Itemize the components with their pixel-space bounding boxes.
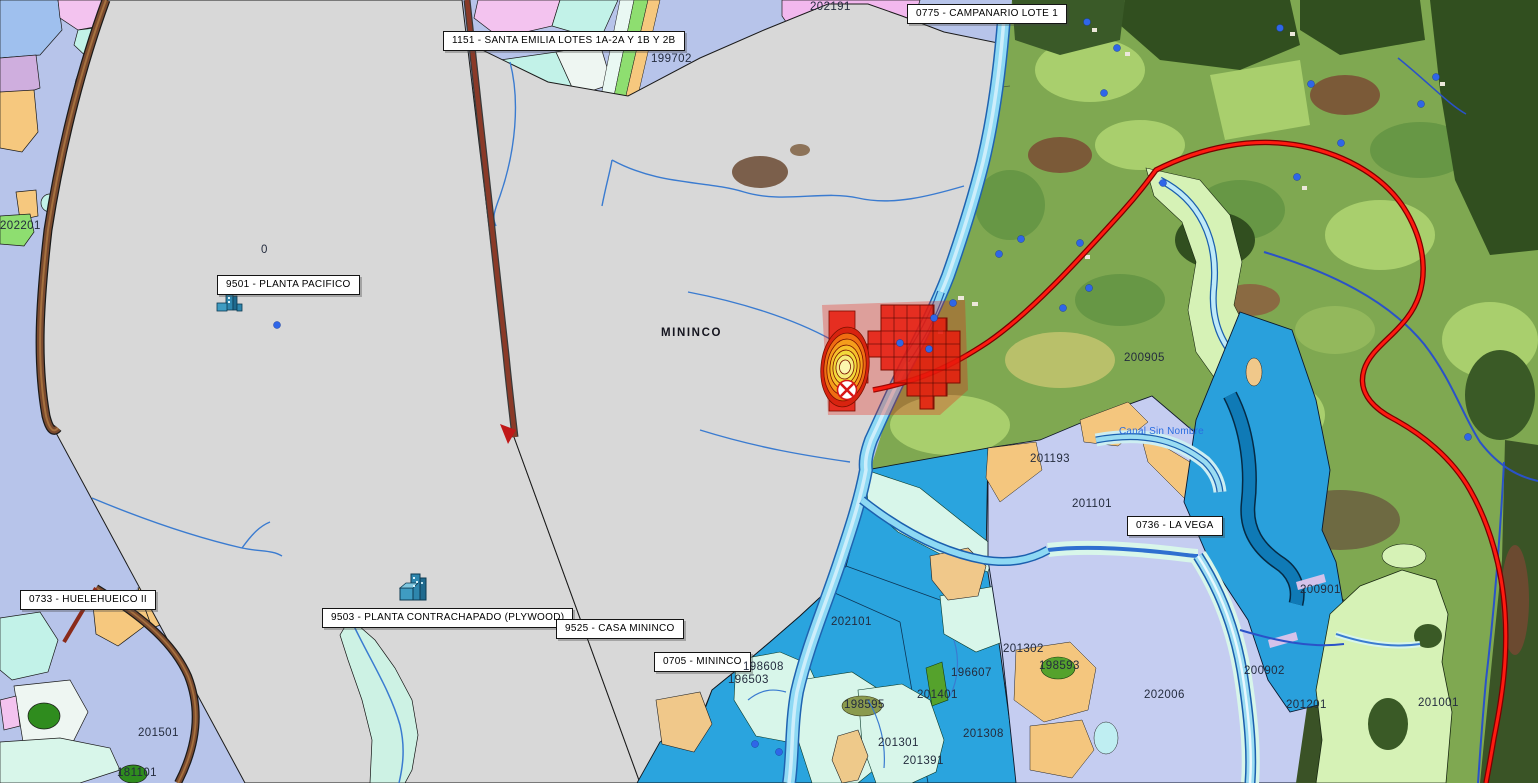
estate-label-9501[interactable]: 9501 - PLANTA PACIFICO xyxy=(217,275,360,295)
stand-label-201401: 201401 xyxy=(917,690,958,702)
estate-label-9525[interactable]: 9525 - CASA MININCO xyxy=(556,619,684,639)
stand-label-201301: 201301 xyxy=(878,738,919,750)
stand-label-201201: 201201 xyxy=(1286,700,1327,712)
estate-label-0775[interactable]: 0775 - CAMPANARIO LOTE 1 xyxy=(907,4,1067,24)
stand-label-202191: 202191 xyxy=(810,2,851,14)
stand-label-201001: 201001 xyxy=(1418,698,1459,710)
incident-marker[interactable] xyxy=(835,378,859,407)
estate-label-0736[interactable]: 0736 - LA VEGA xyxy=(1127,516,1223,536)
stand-label-200905: 200905 xyxy=(1124,353,1165,365)
stand-label-181101: 181101 xyxy=(117,768,157,780)
stand-label-201101: 201101 xyxy=(1072,499,1112,511)
water-name-canal: Canal Sin Nombre xyxy=(1119,427,1204,437)
estate-label-1151[interactable]: 1151 - SANTA EMILIA LOTES 1A-2A Y 1B Y 2… xyxy=(443,31,685,51)
plant-icon-9503[interactable] xyxy=(396,572,434,611)
stand-label-202006: 202006 xyxy=(1144,690,1185,702)
stand-label-198593: 198593 xyxy=(1039,661,1080,673)
place-name-mininco: MININCO xyxy=(661,328,722,340)
stand-label-196503: 196503 xyxy=(728,675,769,687)
plant-icon-9501[interactable] xyxy=(214,293,244,320)
stand-label-201501: 201501 xyxy=(138,728,179,740)
stand-label-201391: 201391 xyxy=(903,756,944,768)
stand-label-199702: 199702 xyxy=(651,54,692,66)
stand-label-201193: 201193 xyxy=(1030,454,1070,466)
stand-label-198595: 198595 xyxy=(844,700,885,712)
stand-label-201302: 201302 xyxy=(1003,644,1044,656)
stand-label-202201: 202201 xyxy=(0,221,41,233)
map-viewport[interactable]: 1151 - SANTA EMILIA LOTES 1A-2A Y 1B Y 2… xyxy=(0,0,1538,783)
stand-label-0: 0 xyxy=(261,245,268,257)
stand-label-200901: 200901 xyxy=(1300,585,1341,597)
stand-label-201308: 201308 xyxy=(963,729,1004,741)
estate-label-0733[interactable]: 0733 - HUELEHUEICO II xyxy=(20,590,156,610)
stand-label-198608: 198608 xyxy=(743,662,784,674)
estate-label-0705[interactable]: 0705 - MININCO xyxy=(654,652,751,672)
stand-label-196607: 196607 xyxy=(951,668,992,680)
estate-label-9503[interactable]: 9503 - PLANTA CONTRACHAPADO (PLYWOOD) xyxy=(322,608,573,628)
stand-label-200902: 200902 xyxy=(1244,666,1285,678)
stand-label-202101: 202101 xyxy=(831,617,872,629)
